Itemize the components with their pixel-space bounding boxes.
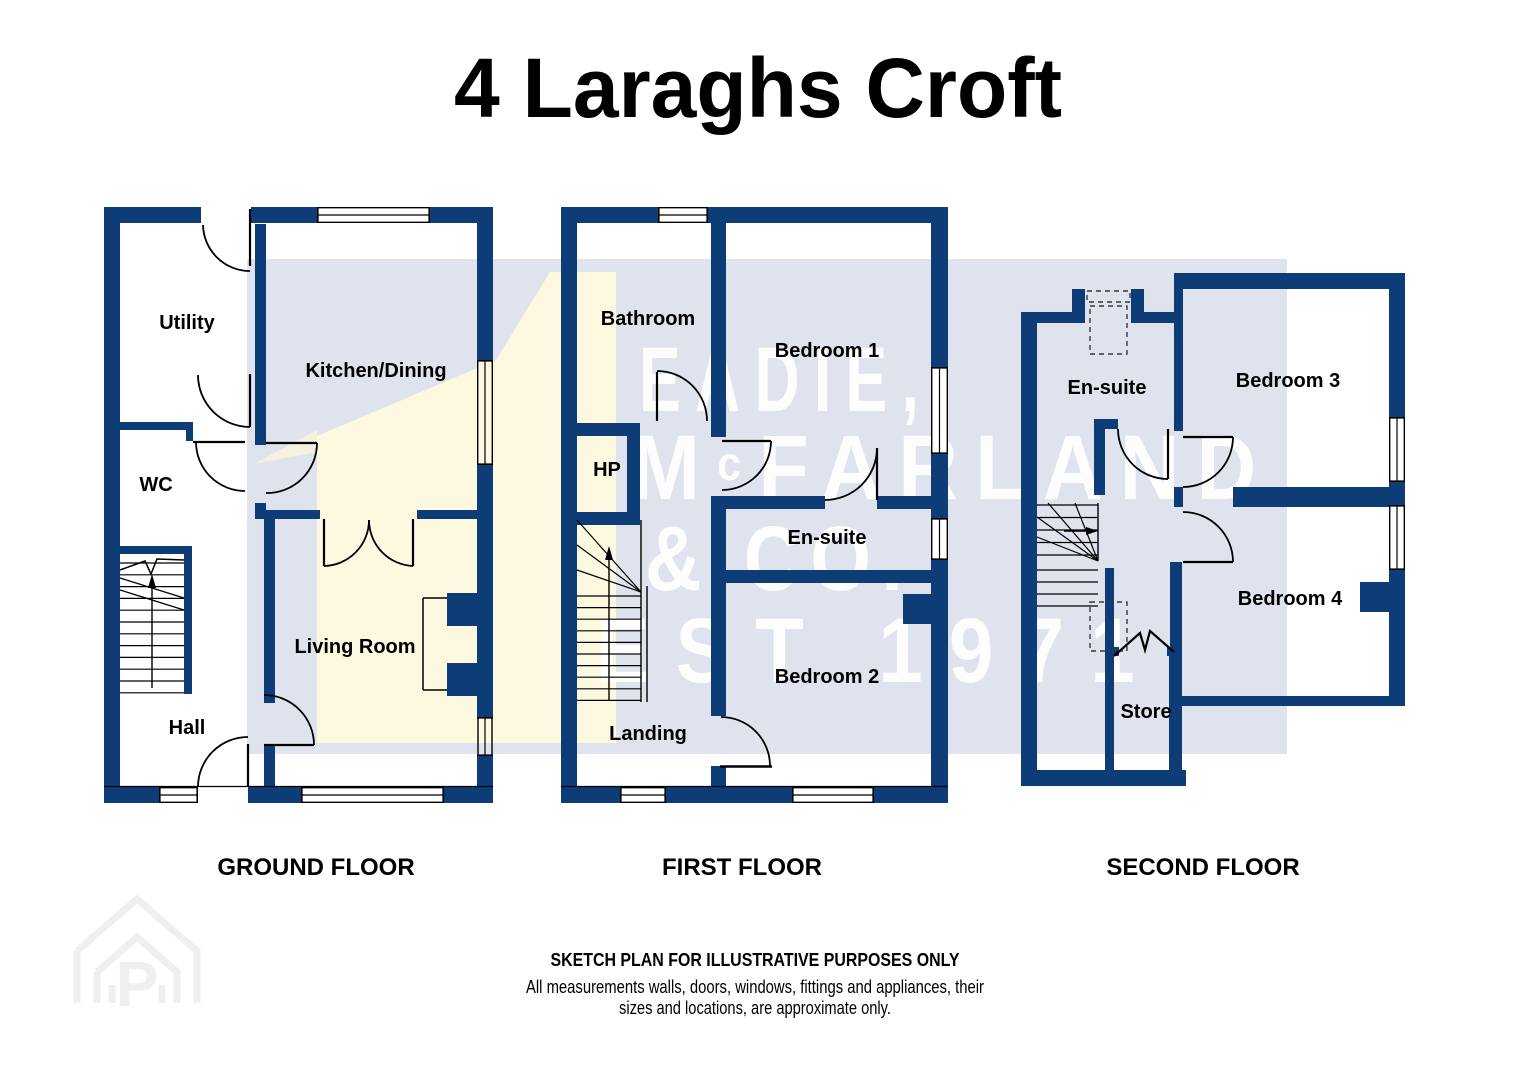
svg-text:Bedroom 3: Bedroom 3 (1236, 370, 1340, 392)
svg-text:Living Room: Living Room (294, 636, 415, 658)
svg-text:Landing: Landing (609, 723, 687, 745)
svg-text:4 Laraghs Croft: 4 Laraghs Croft (454, 41, 1062, 135)
svg-text:Kitchen/Dining: Kitchen/Dining (305, 360, 446, 382)
svg-text:Bedroom 1: Bedroom 1 (775, 340, 879, 362)
svg-text:& CO.: & CO. (645, 508, 913, 610)
svg-text:Bedroom 4: Bedroom 4 (1238, 588, 1343, 610)
svg-text:GROUND FLOOR: GROUND FLOOR (217, 854, 414, 881)
svg-text:Utility: Utility (159, 312, 215, 334)
svg-text:Hall: Hall (169, 717, 206, 739)
svg-text:FIRST FLOOR: FIRST FLOOR (662, 854, 822, 881)
svg-text:P: P (116, 948, 159, 1020)
svg-text:En-suite: En-suite (788, 527, 867, 549)
svg-text:SKETCH PLAN FOR ILLUSTRATIVE P: SKETCH PLAN FOR ILLUSTRATIVE PURPOSES ON… (551, 950, 960, 970)
svg-text:Store: Store (1120, 701, 1171, 723)
svg-text:All measurements walls, doors,: All measurements walls, doors, windows, … (526, 977, 984, 997)
svg-text:Bedroom 2: Bedroom 2 (775, 666, 879, 688)
svg-text:WC: WC (139, 474, 172, 496)
svg-text:HP: HP (593, 459, 621, 481)
svg-text:En-suite: En-suite (1068, 377, 1147, 399)
svg-text:Bathroom: Bathroom (601, 308, 695, 330)
svg-text:SECOND FLOOR: SECOND FLOOR (1106, 854, 1299, 881)
svg-text:sizes and locations, are appro: sizes and locations, are approximate onl… (619, 998, 891, 1018)
